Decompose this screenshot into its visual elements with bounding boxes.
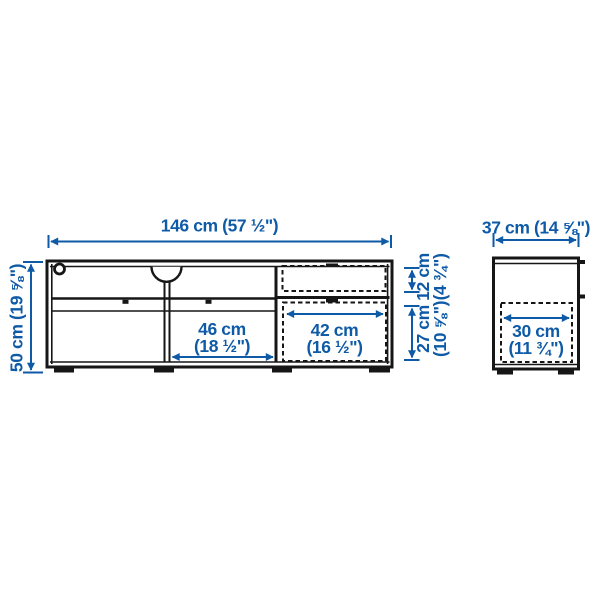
side-interior-width-inches: (11 ¾") [508, 340, 563, 357]
drawer-width-inches: (16 ½") [306, 339, 362, 356]
bottom-drawer-height-inches: (10 ⅝") [432, 301, 449, 357]
cable-cutout-icon [152, 267, 182, 282]
total-depth-label: 37 cm (14 ⅝") [482, 220, 590, 237]
cable-hole-icon [55, 264, 65, 274]
front-foot-2 [154, 367, 174, 373]
shelf-width-label: 46 cm (18 ½") [194, 321, 250, 355]
top-drawer-height-label: 12 cm (4 ¾") [415, 253, 449, 301]
total-height-label: 50 cm (19 ⅝") [9, 264, 26, 372]
shelf-clip-left [123, 300, 129, 304]
shelf-clip-middle [206, 300, 212, 304]
top-drawer-dashed-outline [283, 266, 386, 291]
side-middle-catch [579, 295, 586, 299]
side-interior-width-label: 30 cm (11 ¾") [508, 323, 563, 357]
side-foot-1 [497, 369, 513, 375]
drawer-width-label: 42 cm (16 ½") [306, 322, 362, 356]
shelf-width-inches: (18 ½") [194, 338, 250, 355]
diagram-drawing [0, 0, 600, 600]
product-dimensions-diagram: 146 cm (57 ½") 50 cm (19 ⅝") 37 cm (14 ⅝… [0, 0, 600, 600]
top-drawer-height-inches: (4 ¾") [432, 253, 449, 301]
side-top-catch [579, 260, 586, 264]
front-foot-3 [272, 367, 292, 373]
front-foot-1 [54, 367, 74, 373]
bottom-drawer-height-label: 27 cm (10 ⅝") [415, 301, 449, 357]
front-foot-4 [369, 367, 390, 373]
total-width-label: 146 cm (57 ½") [161, 218, 279, 235]
side-foot-2 [558, 369, 574, 375]
top-drawer-pull-notch [326, 264, 338, 268]
bottom-drawer-pull-notch [326, 299, 338, 303]
